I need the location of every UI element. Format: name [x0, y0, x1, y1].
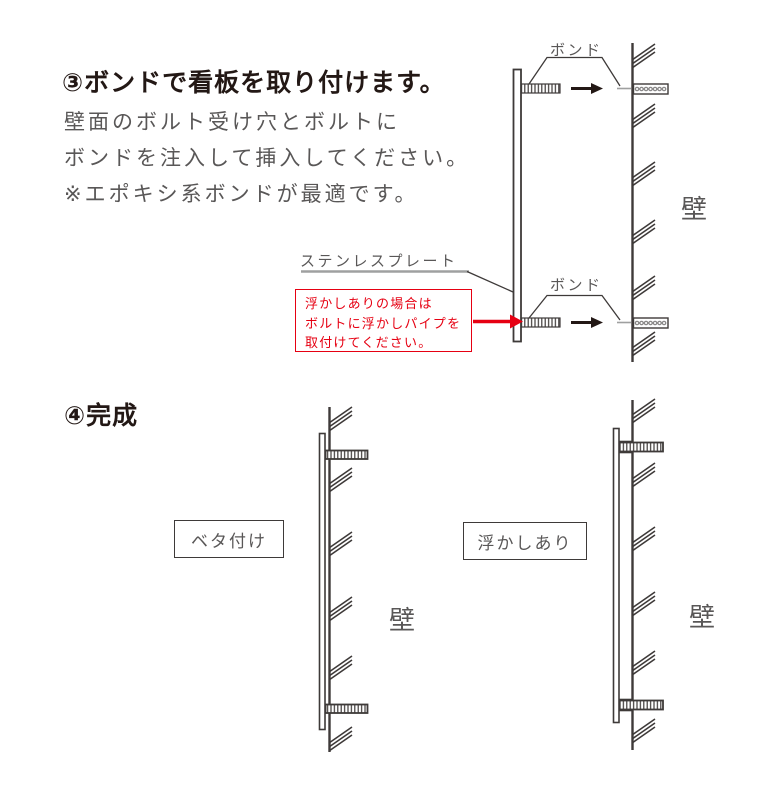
step3-description-line: ボンドを注入して挿入してください。	[64, 141, 470, 177]
stainless-plate-graphic	[320, 434, 326, 730]
instruction-sheet: ③ボンドで看板を取り付けます。 壁面のボルト受け穴とボルトに ボンドを注入して挿…	[0, 0, 780, 803]
bond-hole-top	[634, 84, 669, 94]
step3-description-line: ※エポキシ系ボンドが最適です。	[64, 177, 470, 213]
plate-label-leader-line	[467, 272, 513, 293]
stainless-plate-label: ステンレスプレート	[300, 250, 458, 271]
step3-description-line: 壁面のボルト受け穴とボルトに	[64, 105, 470, 141]
standoff-note-line: 浮かしありの場合は	[305, 294, 471, 314]
stainless-plate-graphic	[614, 429, 620, 723]
standoff-label-box: 浮かしあり	[463, 522, 587, 560]
standoff-note-line: ボルトに浮かしパイプを	[305, 314, 471, 334]
step4-heading: ④完成	[64, 396, 138, 432]
standoff-note-line: 取付けてください。	[305, 333, 471, 353]
step4-flush-diagram	[320, 407, 368, 752]
flush-mount-label-box: ベタ付け	[174, 520, 284, 558]
bond-hole-bottom	[634, 318, 669, 328]
bond-callout-bracket-top	[529, 58, 620, 87]
bolt-graphic-bottom	[326, 705, 368, 714]
bolt-graphic-bottom	[620, 701, 664, 710]
step3-heading: ③ボンドで看板を取り付けます。	[62, 63, 446, 99]
wall-label-flush: 壁	[389, 600, 415, 637]
wall-label-step3: 壁	[681, 189, 707, 226]
step3-description: 壁面のボルト受け穴とボルトに ボンドを注入して挿入してください。 ※エポキシ系ボ…	[64, 105, 470, 213]
standoff-note-box: 浮かしありの場合は ボルトに浮かしパイプを 取付けてください。	[295, 289, 472, 352]
bond-label-bottom: ボンド	[550, 274, 603, 295]
bond-callout-bracket-bottom	[529, 296, 620, 321]
arrow-right-icon	[571, 317, 603, 328]
bolt-graphic-top	[326, 451, 368, 460]
stainless-plate-graphic	[514, 70, 522, 342]
bolt-graphic-bottom	[522, 318, 561, 327]
bolt-graphic-top	[620, 443, 664, 452]
bolt-graphic-top	[522, 84, 561, 93]
bond-label-top: ボンド	[550, 39, 603, 60]
arrow-right-icon	[571, 83, 603, 94]
wall-label-standoff: 壁	[689, 597, 715, 634]
step4-standoff-diagram	[614, 399, 664, 750]
